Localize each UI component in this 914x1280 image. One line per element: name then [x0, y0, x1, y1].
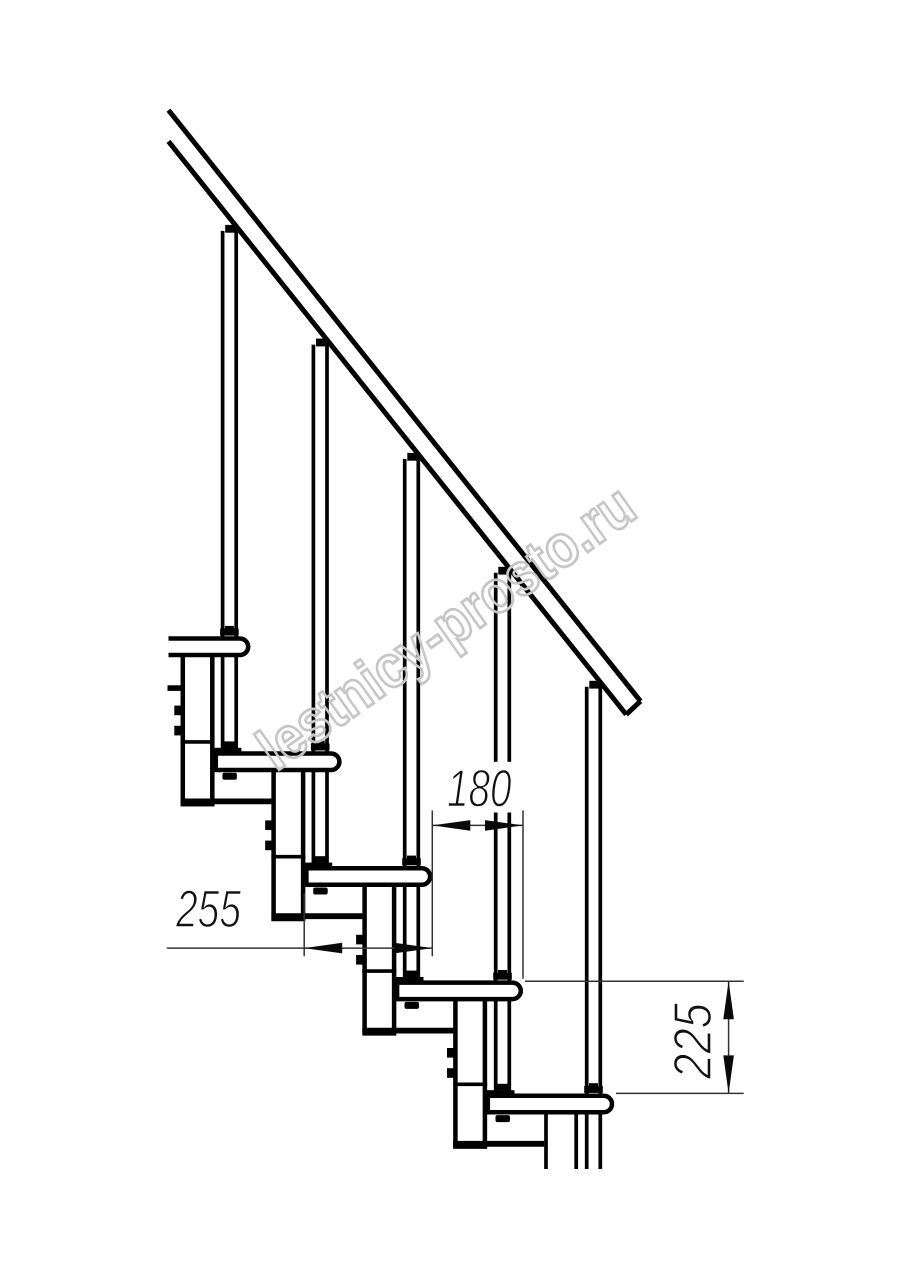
svg-text:180: 180: [447, 760, 512, 819]
svg-text:225: 225: [663, 1002, 723, 1080]
svg-text:255: 255: [175, 880, 241, 939]
